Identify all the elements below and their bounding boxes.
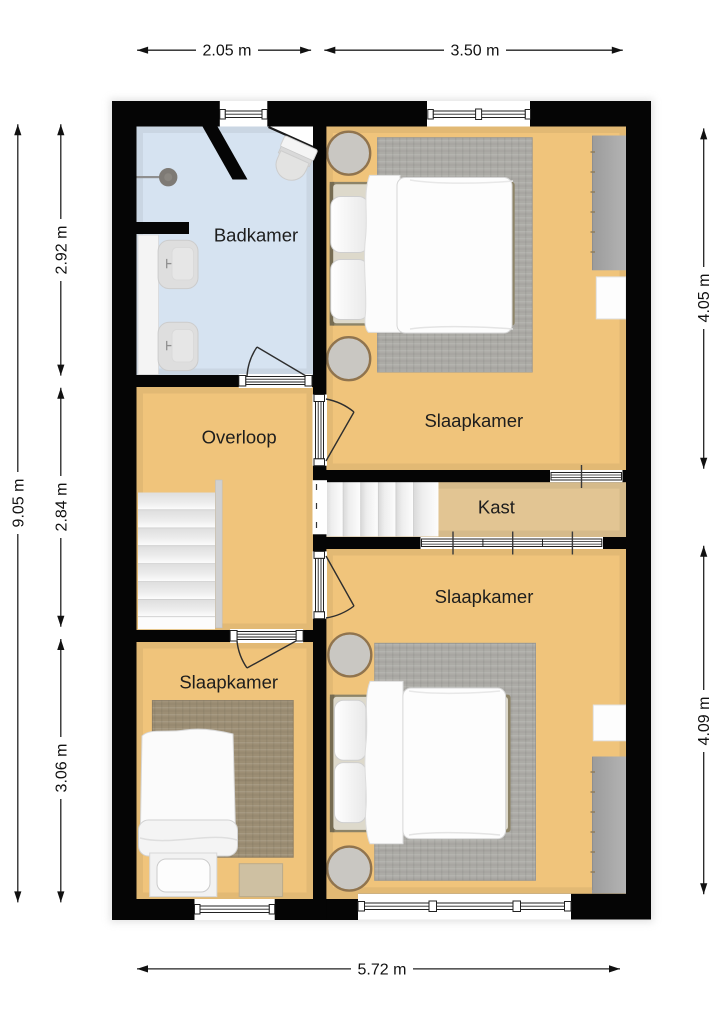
svg-text:3.50 m: 3.50 m: [451, 43, 500, 60]
svg-text:2.05 m: 2.05 m: [203, 43, 252, 60]
svg-text:3.06 m: 3.06 m: [53, 744, 70, 793]
svg-text:Slaapkamer: Slaapkamer: [435, 586, 534, 607]
svg-text:Kast: Kast: [478, 497, 515, 518]
svg-text:Overloop: Overloop: [202, 427, 277, 448]
svg-text:5.72 m: 5.72 m: [358, 961, 407, 978]
svg-text:Badkamer: Badkamer: [214, 225, 298, 246]
svg-text:Slaapkamer: Slaapkamer: [179, 672, 278, 693]
svg-text:4.05 m: 4.05 m: [696, 274, 713, 323]
svg-text:2.84 m: 2.84 m: [53, 483, 70, 532]
svg-text:Slaapkamer: Slaapkamer: [424, 410, 523, 431]
svg-text:4.09 m: 4.09 m: [696, 697, 713, 746]
svg-text:9.05 m: 9.05 m: [10, 479, 27, 528]
svg-text:2.92 m: 2.92 m: [53, 226, 70, 275]
